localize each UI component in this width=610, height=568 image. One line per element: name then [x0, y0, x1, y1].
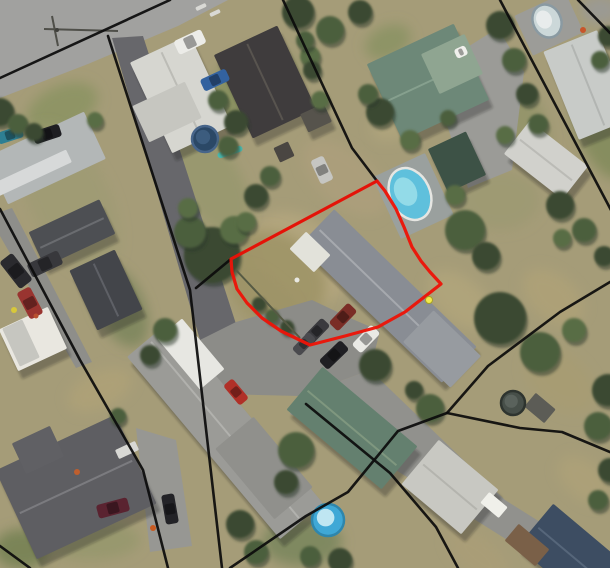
tree-canopy [226, 510, 254, 538]
tree-canopy [591, 51, 609, 69]
tree-canopy [553, 229, 571, 247]
tree-canopy [224, 110, 248, 134]
tree-canopy [472, 242, 500, 270]
tree-canopy [208, 90, 228, 110]
pool-round-w [192, 126, 218, 152]
parcel-marker-dot [426, 297, 433, 304]
tree-canopy [416, 394, 444, 422]
tree-canopy [178, 198, 198, 218]
tree-canopy [25, 123, 43, 141]
tree-canopy [358, 84, 378, 104]
tree-canopy [528, 114, 548, 134]
tree-canopy [300, 546, 320, 566]
car-black-2-glass [164, 503, 176, 515]
tree-canopy [260, 166, 280, 186]
tree-canopy [588, 490, 608, 510]
tree-canopy [316, 16, 344, 44]
tree-canopy [486, 11, 514, 39]
tree-canopy [236, 212, 256, 232]
tree-canopy [400, 130, 420, 150]
tree-canopy [153, 318, 177, 342]
water-tank-s [501, 391, 525, 415]
tree-canopy [218, 136, 238, 156]
ground-object-dot [295, 278, 300, 283]
tree-canopy [562, 318, 586, 342]
water-tank-s-inner [505, 395, 518, 408]
pool-round-t-inner [317, 509, 335, 527]
aerial-map-viewport[interactable] [0, 0, 610, 568]
tree-canopy [274, 470, 298, 494]
tree-canopy [87, 112, 103, 128]
tree-canopy [440, 110, 456, 126]
tree-canopy [244, 184, 268, 208]
tree-canopy [348, 0, 372, 24]
ground-object-dot [34, 314, 39, 319]
ground-object-dot [55, 28, 59, 32]
tree-canopy [359, 349, 391, 381]
tree-canopy [502, 48, 526, 72]
tree-canopy [8, 114, 28, 134]
tree-canopy [405, 381, 423, 399]
tree-canopy [572, 218, 596, 242]
tree-canopy [516, 83, 538, 105]
aerial-imagery [0, 0, 610, 568]
tree-canopy [278, 432, 314, 468]
tree-canopy [474, 292, 526, 344]
tree-canopy [445, 185, 465, 205]
pool-round-w-inner [196, 130, 210, 144]
ground-object-dot [150, 525, 156, 531]
ground-object-dot [74, 469, 80, 475]
tree-canopy [140, 345, 160, 365]
tree-canopy [546, 191, 574, 219]
ground-object-dot [580, 27, 586, 33]
tree-canopy [496, 126, 514, 144]
ground-object-dot [11, 307, 17, 313]
